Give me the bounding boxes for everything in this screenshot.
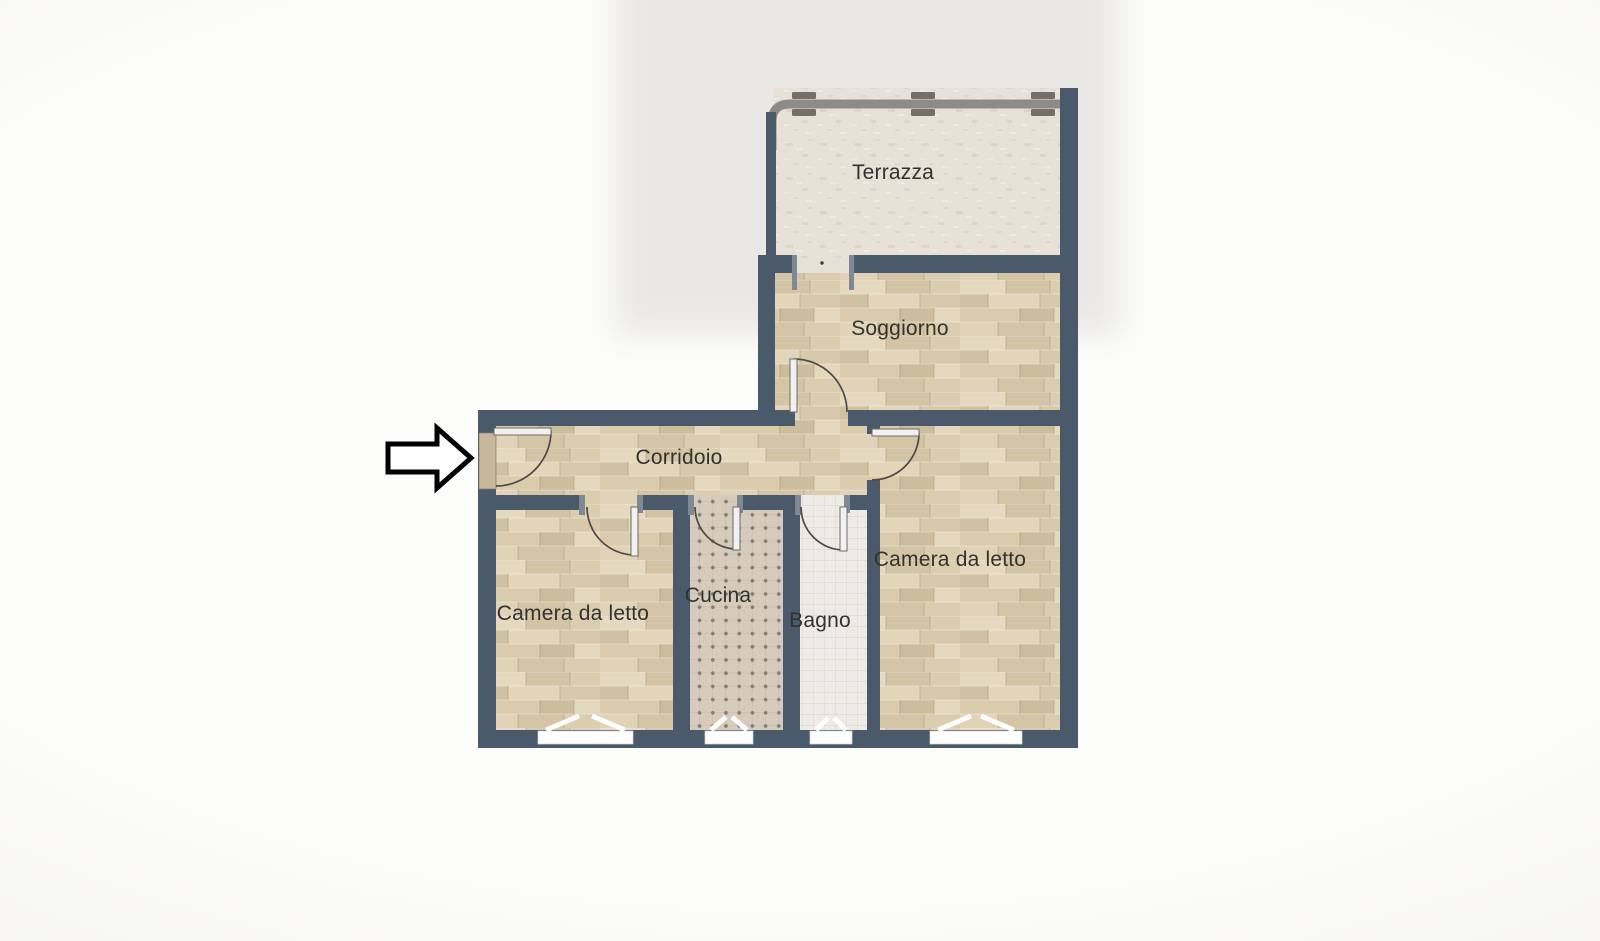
wall xyxy=(1060,88,1078,748)
terrace-door-mark xyxy=(820,261,823,264)
bagno-door-leaf xyxy=(840,507,847,551)
window-camera-dx xyxy=(930,731,1022,744)
bedroom1-door-threshold xyxy=(585,495,637,510)
room-label-bagno: Bagno xyxy=(789,609,851,632)
wall xyxy=(867,480,880,735)
floor-plan-canvas: Terrazza Soggiorno Corridoio Camera da l… xyxy=(0,0,1600,941)
soggiorno-door-threshold xyxy=(795,410,848,426)
entrance-door-leaf xyxy=(494,428,551,435)
room-label-soggiorno: Soggiorno xyxy=(851,317,949,340)
room-floor-soggiorno xyxy=(775,273,1060,410)
entrance-arrow-icon xyxy=(388,428,471,488)
wall xyxy=(758,255,775,426)
soggiorno-door-leaf xyxy=(790,359,797,412)
wall xyxy=(758,255,795,273)
wall xyxy=(478,495,585,510)
bedroom2-door-leaf xyxy=(872,429,919,436)
cucina-door-leaf xyxy=(733,507,740,550)
bedroom2-door-threshold xyxy=(867,434,880,480)
window-cucina xyxy=(705,731,753,744)
floors xyxy=(496,88,1062,730)
room-label-camera-dx: Camera da letto xyxy=(874,548,1026,571)
terrace-door-threshold xyxy=(795,258,850,273)
wall xyxy=(850,255,1060,273)
entrance-door-panel xyxy=(479,433,496,489)
room-floor-camera-dx xyxy=(880,426,1060,730)
wall xyxy=(478,410,795,426)
room-label-cucina: Cucina xyxy=(685,584,752,607)
floor-plan-svg: Terrazza Soggiorno Corridoio Camera da l… xyxy=(0,0,1600,941)
window-camera-sx xyxy=(538,731,633,744)
room-label-terrazza: Terrazza xyxy=(852,161,934,184)
room-label-camera-sx: Camera da letto xyxy=(497,602,649,625)
wall xyxy=(848,410,1078,426)
wall xyxy=(766,112,776,258)
room-label-corridoio: Corridoio xyxy=(636,446,723,469)
wall xyxy=(673,495,690,735)
bedroom1-door-leaf xyxy=(631,507,638,556)
window-bagno xyxy=(810,731,852,744)
